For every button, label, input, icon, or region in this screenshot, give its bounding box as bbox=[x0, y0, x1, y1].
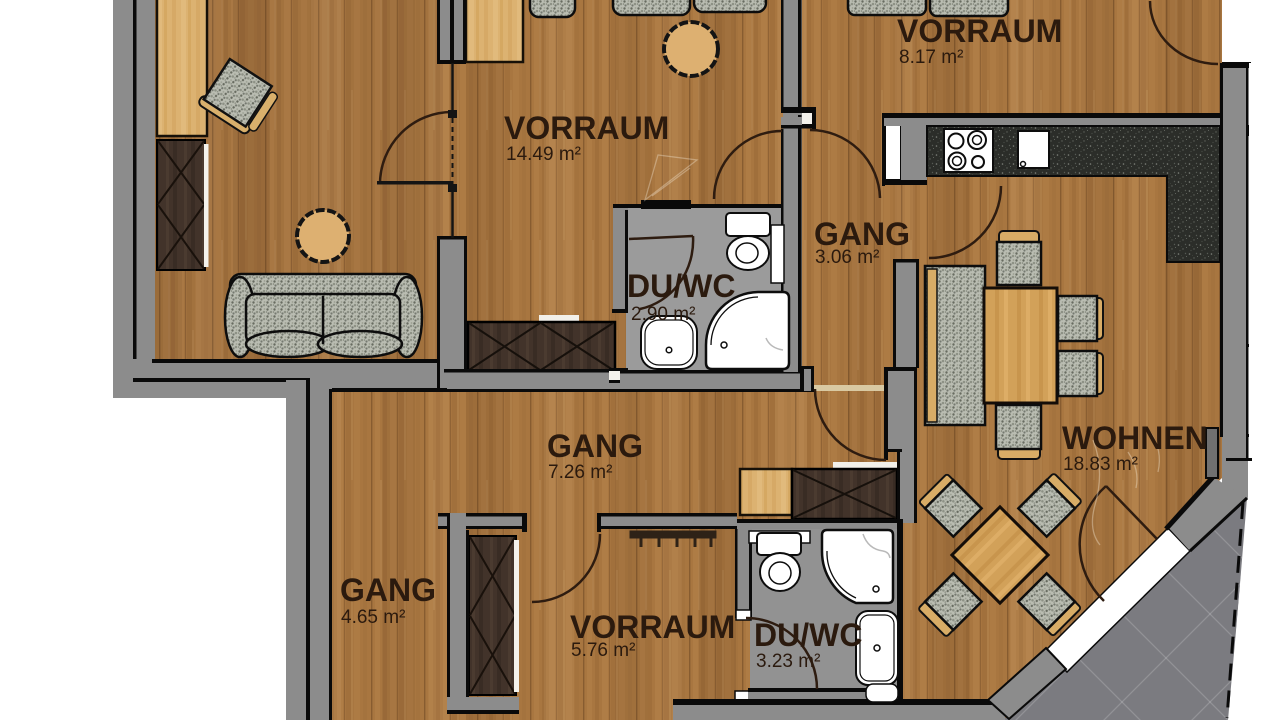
svg-text:5.76 m²: 5.76 m² bbox=[571, 640, 635, 661]
svg-text:4.65 m²: 4.65 m² bbox=[341, 607, 405, 628]
svg-text:DU/WC: DU/WC bbox=[627, 268, 735, 304]
svg-text:WOHNEN: WOHNEN bbox=[1062, 420, 1208, 456]
svg-text:GANG: GANG bbox=[340, 572, 436, 608]
svg-text:14.49 m²: 14.49 m² bbox=[506, 144, 581, 165]
svg-text:7.26 m²: 7.26 m² bbox=[548, 462, 612, 483]
svg-text:3.23 m²: 3.23 m² bbox=[756, 651, 820, 672]
svg-text:GANG: GANG bbox=[547, 428, 643, 464]
svg-text:8.17 m²: 8.17 m² bbox=[899, 47, 963, 68]
svg-text:DU/WC: DU/WC bbox=[754, 617, 862, 653]
svg-text:18.83 m²: 18.83 m² bbox=[1063, 454, 1138, 475]
svg-text:3.06 m²: 3.06 m² bbox=[815, 247, 879, 268]
svg-text:VORRAUM: VORRAUM bbox=[504, 110, 669, 146]
svg-text:VORRAUM: VORRAUM bbox=[897, 13, 1062, 49]
svg-text:2.90 m²: 2.90 m² bbox=[631, 304, 695, 325]
